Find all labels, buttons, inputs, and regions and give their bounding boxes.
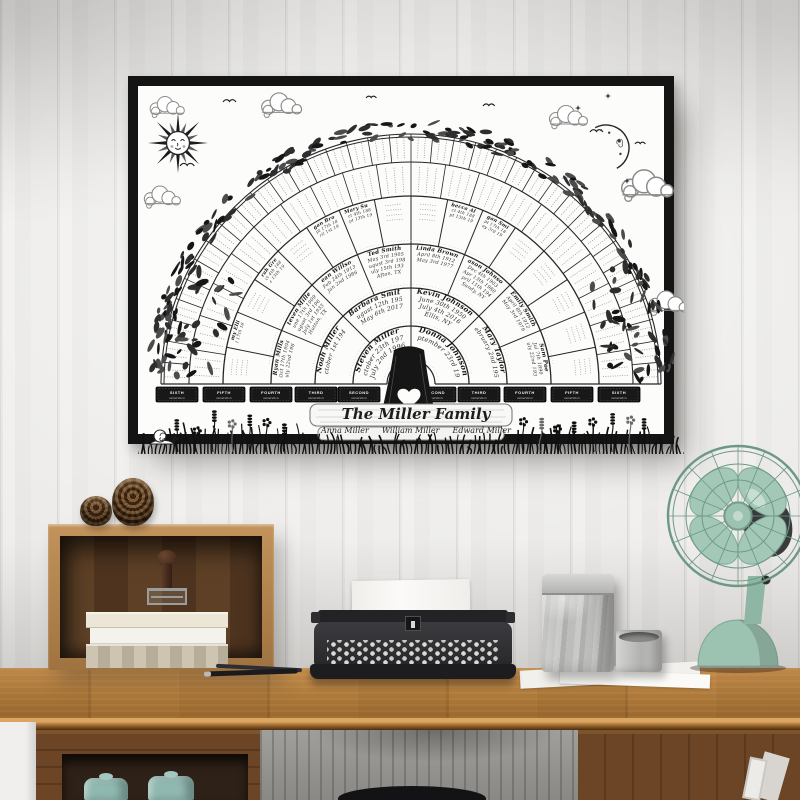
galvanized-canister bbox=[542, 574, 614, 672]
moon-icon bbox=[595, 117, 637, 168]
stacked-book bbox=[86, 612, 228, 628]
framed-family-tree-poster: Steven MillerOctober 23th 1973July 2nd 1… bbox=[128, 76, 674, 444]
person-name: Steven Miller bbox=[138, 86, 313, 326]
sparkle-icon bbox=[575, 105, 581, 111]
sun-icon bbox=[148, 113, 208, 173]
teal-jar bbox=[148, 776, 194, 800]
stacked-book bbox=[90, 628, 226, 644]
family-name: William Miller bbox=[382, 426, 440, 438]
generation-ribbon: FOURTHGeneration bbox=[504, 387, 546, 402]
rubber-stamp bbox=[144, 550, 190, 614]
svg-text:Generation: Generation bbox=[611, 396, 627, 400]
stamp-handle bbox=[162, 563, 172, 590]
wall-corner-strip bbox=[0, 722, 36, 800]
person-date: June 17th 1909 bbox=[138, 86, 318, 329]
cloud-icon bbox=[144, 186, 180, 208]
generation-ribbon: FIFTHGeneration bbox=[551, 387, 593, 402]
person-date: April 11th 1944 bbox=[138, 86, 492, 299]
svg-text:Generation: Generation bbox=[351, 396, 367, 400]
person-date: Dec 13th 1919 bbox=[138, 86, 286, 284]
typewriter-keys bbox=[327, 640, 499, 664]
svg-text:SECOND: SECOND bbox=[349, 390, 369, 395]
svg-text:SIXTH: SIXTH bbox=[170, 390, 184, 395]
person-name: Rebecca Allen bbox=[138, 86, 476, 215]
vintage-typewriter bbox=[314, 580, 512, 682]
family-name: Anna Miller bbox=[321, 426, 369, 438]
bird-icon bbox=[483, 104, 495, 106]
person-name: Dean Willson bbox=[138, 86, 353, 284]
family-name: Edward Miller bbox=[453, 426, 512, 438]
sparkle-icon bbox=[605, 93, 611, 99]
fan-head bbox=[668, 446, 800, 586]
svg-text:Generation: Generation bbox=[308, 396, 324, 400]
generation-ribbon: FOURTHGeneration bbox=[250, 387, 292, 402]
person-name: Sarah Green bbox=[138, 86, 279, 278]
generation-ribbon: SIXTHGeneration bbox=[156, 387, 198, 402]
svg-text:FIFTH: FIFTH bbox=[565, 390, 579, 395]
svg-text:Generation: Generation bbox=[263, 396, 279, 400]
svg-text:FOURTH: FOURTH bbox=[515, 390, 535, 395]
cloud-icon bbox=[550, 106, 588, 129]
generation-ribbon: SECONDGeneration bbox=[338, 387, 380, 402]
pinecone bbox=[80, 496, 112, 526]
poster-art: Steven MillerOctober 23th 1973July 2nd 1… bbox=[138, 86, 684, 454]
stamp-metal-frame bbox=[147, 588, 187, 605]
svg-text:Generation: Generation bbox=[517, 396, 533, 400]
generation-ribbon: FIFTHGeneration bbox=[203, 387, 245, 402]
generation-ribbon: THIRDGeneration bbox=[295, 387, 337, 402]
svg-text:THIRD: THIRD bbox=[309, 390, 324, 395]
typewriter-type-guide bbox=[405, 616, 421, 631]
desk-front-edge bbox=[0, 718, 800, 730]
metal-cup bbox=[616, 630, 662, 672]
vintage-desk-fan bbox=[660, 418, 800, 674]
person-date: May 3rd 1919 bbox=[138, 86, 504, 238]
teal-jar bbox=[84, 778, 128, 800]
bird-icon bbox=[180, 163, 194, 166]
svg-text:THIRD: THIRD bbox=[472, 390, 487, 395]
svg-text:Generation: Generation bbox=[564, 396, 580, 400]
svg-text:Generation: Generation bbox=[471, 396, 487, 400]
bird-icon bbox=[223, 100, 236, 102]
svg-text:Generation: Generation bbox=[169, 396, 185, 400]
svg-text:SIXTH: SIXTH bbox=[612, 390, 626, 395]
generation-ribbon: THIRDGeneration bbox=[458, 387, 500, 402]
generation-ribbon: SIXTHGeneration bbox=[598, 387, 640, 402]
typewriter-base bbox=[310, 664, 516, 679]
family-names-row: Anna Miller William Miller Edward Miller bbox=[321, 426, 511, 438]
svg-text:Generation: Generation bbox=[216, 396, 232, 400]
cloud-icon bbox=[622, 170, 673, 201]
room-scene: Steven MillerOctober 23th 1973July 2nd 1… bbox=[0, 0, 800, 800]
bird-icon bbox=[366, 96, 376, 98]
stacked-book bbox=[86, 644, 228, 668]
cloud-icon bbox=[150, 97, 184, 118]
pinecone bbox=[112, 478, 154, 526]
svg-text:FOURTH: FOURTH bbox=[261, 390, 281, 395]
bird-icon bbox=[635, 142, 645, 144]
fan-chart: Steven MillerOctober 23th 1973July 2nd 1… bbox=[138, 86, 661, 384]
poster-title: The Miller Family bbox=[316, 403, 516, 426]
svg-text:FIFTH: FIFTH bbox=[217, 390, 231, 395]
cloud-icon bbox=[262, 93, 302, 117]
person-name: Amy Ellis bbox=[138, 86, 242, 341]
